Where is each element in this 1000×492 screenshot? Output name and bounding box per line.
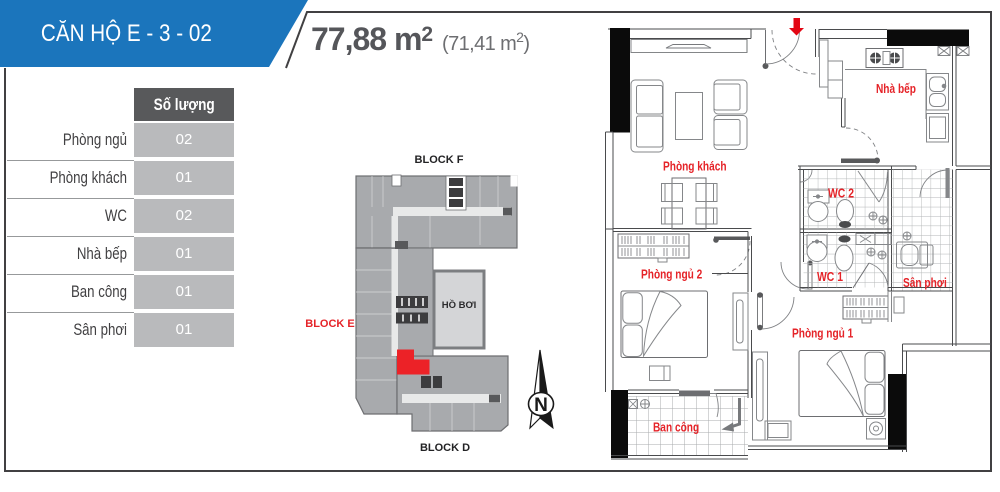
svg-text:BLOCK F: BLOCK F xyxy=(415,154,464,166)
svg-text:WC 1: WC 1 xyxy=(817,270,843,284)
svg-text:Phòng ngủ 1: Phòng ngủ 1 xyxy=(792,326,854,340)
svg-text:Nhà bếp: Nhà bếp xyxy=(876,82,916,96)
svg-text:HỒ BƠI: HỒ BƠI xyxy=(442,299,477,311)
svg-text:N: N xyxy=(534,395,548,416)
svg-text:Phòng ngủ 2: Phòng ngủ 2 xyxy=(641,267,703,281)
svg-text:WC 2: WC 2 xyxy=(828,186,854,200)
svg-text:BLOCK D: BLOCK D xyxy=(420,442,470,454)
svg-text:Phòng khách: Phòng khách xyxy=(663,159,727,173)
svg-text:Sân phơi: Sân phơi xyxy=(903,276,947,290)
svg-text:BLOCK E: BLOCK E xyxy=(305,318,355,330)
svg-text:Ban công: Ban công xyxy=(653,420,699,434)
